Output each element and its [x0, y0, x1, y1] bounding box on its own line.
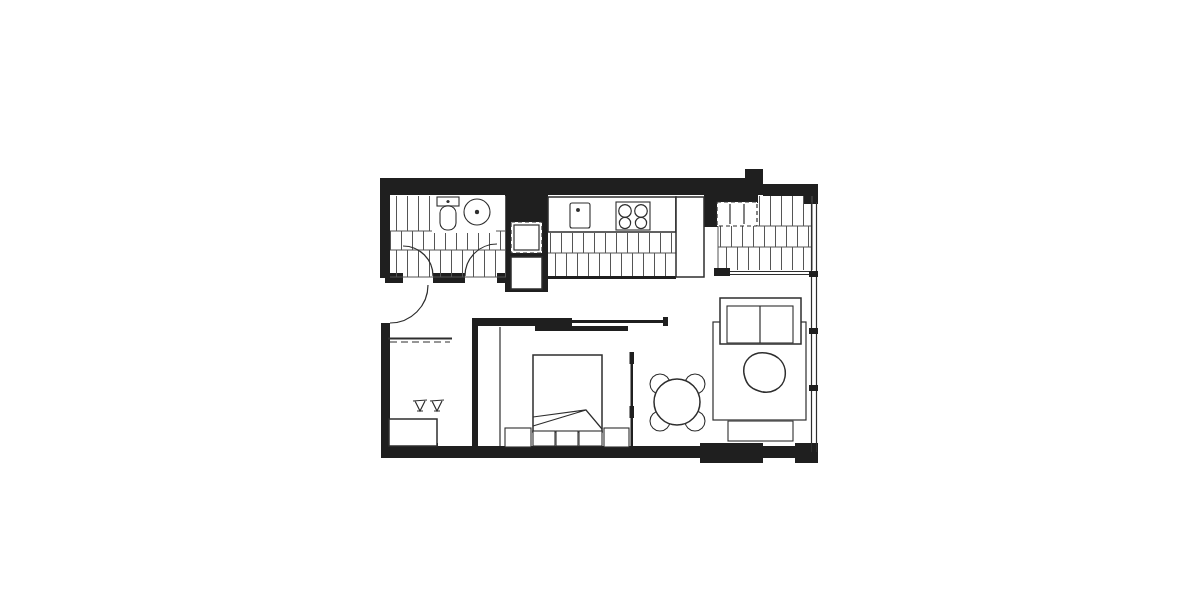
tall-cabinet [676, 197, 704, 277]
fridge-space-dashed [511, 222, 542, 253]
dining-table [654, 379, 700, 425]
kitchen-right-column [704, 178, 718, 227]
desk-chair [413, 400, 444, 411]
sliding-door-rail [570, 320, 667, 323]
bed-foot-storage-2 [556, 431, 578, 446]
sliding-door-rail-end [663, 317, 668, 326]
slider-handle-mid [630, 406, 635, 418]
toilet-bowl [440, 206, 456, 230]
bottom-right-corner [795, 443, 818, 463]
bed-foot-storage-3 [579, 431, 602, 446]
bedroom-left-wall [472, 318, 478, 448]
kitchen-sink [570, 203, 590, 228]
bedroom [500, 317, 668, 447]
entry-hall [388, 285, 452, 446]
wardrobe-wall-infill [718, 178, 758, 203]
sliding-door-panel [535, 326, 628, 331]
basin-drain [475, 210, 479, 214]
kitchen-floor [548, 233, 676, 279]
living-dining [650, 298, 806, 441]
toilet-button [446, 200, 449, 203]
sink-tap [576, 208, 580, 212]
mullion-1 [809, 271, 818, 277]
tv-unit [728, 421, 793, 441]
appliance-space-dashed [717, 202, 757, 226]
bedroom-top-wall [472, 318, 572, 326]
bed [533, 355, 602, 432]
slider-handle-top [630, 352, 635, 364]
column-cabinet [511, 257, 542, 289]
bed-foot-storage-1 [533, 431, 555, 446]
kitchen-counter [548, 197, 676, 232]
bedroom-living-slider [631, 352, 634, 447]
desk [389, 419, 437, 446]
coffee-table-organic [744, 353, 786, 393]
floor-plan-svg [0, 0, 1200, 616]
floor-plan-page [0, 0, 1200, 616]
wardrobe-track-end [714, 268, 730, 276]
bottom-wall-block [700, 443, 763, 463]
mullion-2 [809, 328, 818, 334]
mullion-3 [809, 385, 818, 391]
entry-door-arc [390, 285, 428, 323]
bedside-table-right [604, 428, 629, 447]
kitchen-floor-edge [548, 276, 676, 279]
left-wall-upper [380, 178, 390, 278]
bedside-table-left [505, 428, 531, 447]
